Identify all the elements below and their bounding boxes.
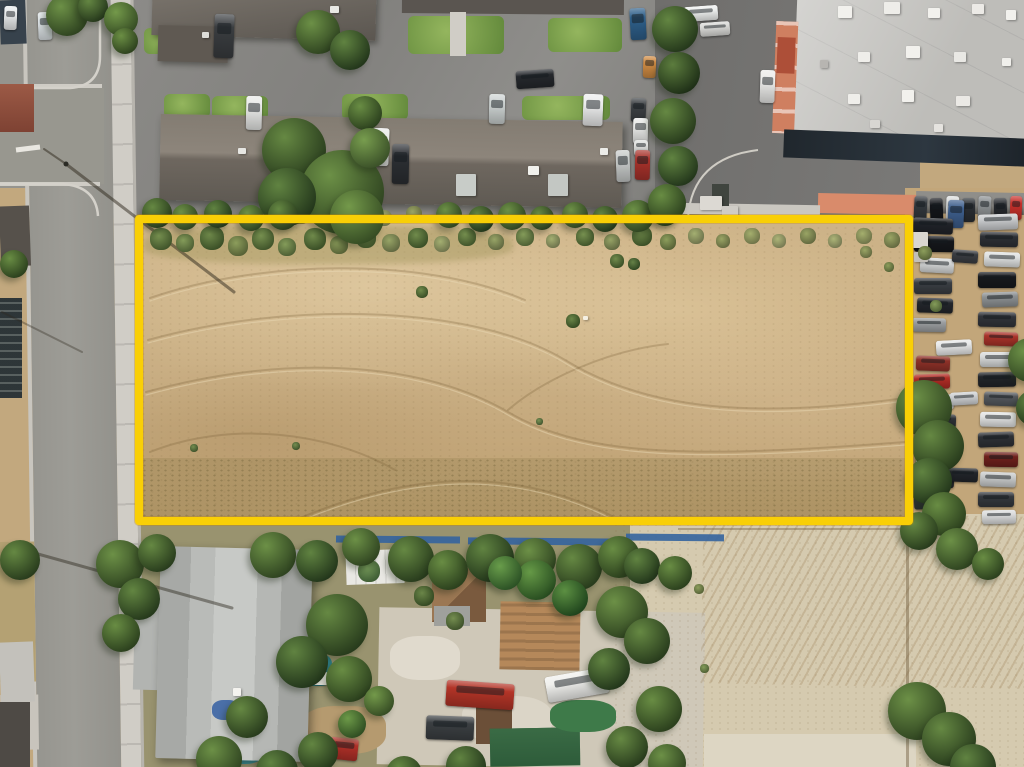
roof-unit (202, 32, 209, 38)
tree (296, 540, 338, 582)
tree (338, 710, 366, 738)
tree (624, 548, 660, 584)
roof-unit (934, 124, 943, 132)
car (978, 492, 1014, 507)
gravel-patch (390, 636, 460, 680)
car (980, 471, 1017, 487)
car (950, 391, 979, 405)
green-shed-roof (490, 727, 581, 767)
red-wall (0, 84, 34, 132)
concrete-pad (704, 734, 916, 767)
car (213, 14, 235, 59)
car (978, 312, 1016, 328)
roof-unit (884, 2, 900, 14)
tree (658, 556, 692, 590)
tree (348, 96, 382, 130)
roof-unit (972, 4, 984, 14)
roof-unit (838, 6, 852, 18)
roof-unit (848, 94, 860, 104)
left-edge-roof-light (0, 641, 35, 702)
roof-unit (956, 96, 970, 106)
tree (330, 30, 370, 70)
tree (0, 540, 40, 580)
car (984, 251, 1021, 267)
car (489, 94, 506, 124)
industrial-roof (792, 0, 1024, 141)
roof-unit (600, 148, 608, 155)
tree (342, 528, 380, 566)
shrub (414, 586, 434, 606)
tree (552, 580, 588, 616)
apartment-building-edge (402, 0, 624, 15)
car (615, 150, 630, 182)
roof-unit (1002, 58, 1011, 66)
tree (650, 98, 696, 144)
tree (364, 686, 394, 716)
tree (516, 560, 556, 600)
roof-unit (870, 120, 880, 128)
aerial-photo-canvas (0, 0, 1024, 767)
tree (652, 6, 698, 52)
car (392, 144, 410, 184)
roof-unit (820, 60, 828, 68)
tree (0, 250, 28, 278)
industrial-building (764, 0, 1024, 191)
tree (606, 726, 648, 767)
tree (588, 648, 630, 690)
tree (624, 618, 670, 664)
car (952, 249, 979, 264)
industrial-red-accent (776, 37, 795, 74)
tree (488, 556, 522, 590)
tree (276, 636, 328, 688)
tree (250, 532, 296, 578)
tree (428, 550, 468, 590)
car (978, 372, 1016, 388)
car (700, 21, 731, 37)
car (980, 412, 1016, 428)
tree (138, 534, 176, 572)
car (984, 452, 1018, 468)
car (445, 680, 515, 711)
tree (388, 536, 434, 582)
shrub (930, 300, 942, 312)
left-edge-roof-dark (0, 702, 30, 767)
left-edge-building-solar (0, 298, 22, 398)
shrub (700, 664, 709, 673)
tree (298, 732, 338, 767)
roof-unit (902, 90, 914, 102)
car (4, 6, 18, 30)
shrub (918, 246, 932, 260)
car (635, 150, 651, 180)
car (629, 8, 647, 41)
car (982, 291, 1019, 307)
tree (226, 696, 268, 738)
car (643, 56, 657, 78)
roof-unit (858, 52, 870, 62)
tree (350, 128, 390, 168)
car (978, 213, 1019, 230)
car (759, 70, 775, 104)
roof-unit (238, 148, 246, 154)
blue-fence-segment (626, 534, 724, 542)
green-tarp (550, 700, 616, 732)
roof-unit (456, 174, 476, 196)
roof-unit (700, 196, 722, 210)
grass-patch (548, 18, 622, 52)
tree (112, 28, 138, 54)
car (978, 431, 1015, 447)
car (914, 278, 952, 294)
tree (658, 52, 700, 94)
car (426, 715, 475, 741)
roof-unit (528, 166, 539, 175)
car (582, 94, 603, 127)
car (916, 355, 951, 371)
car (912, 318, 946, 333)
tree (972, 548, 1004, 580)
salmon-wall-strip (818, 193, 918, 215)
car (936, 339, 973, 356)
side-street-curb-bottom (0, 182, 100, 186)
car (948, 467, 978, 482)
shrub (694, 584, 704, 594)
roof-unit (548, 174, 568, 196)
tree (102, 614, 140, 652)
roof-unit (233, 688, 241, 696)
car (515, 69, 554, 90)
fence-line-horizontal (678, 528, 912, 530)
tree (658, 146, 698, 186)
shrub (446, 612, 464, 630)
roof-unit (954, 52, 966, 62)
roof-unit (906, 46, 920, 58)
walkway (450, 12, 466, 56)
roof-unit (330, 6, 339, 13)
parcel-boundary-outline (135, 215, 913, 525)
car (978, 272, 1016, 288)
car (984, 391, 1018, 406)
car (246, 96, 263, 130)
tree (636, 686, 682, 732)
car (980, 232, 1018, 248)
roof-unit (928, 8, 940, 18)
roof-unit (1006, 10, 1016, 20)
car (982, 510, 1016, 525)
